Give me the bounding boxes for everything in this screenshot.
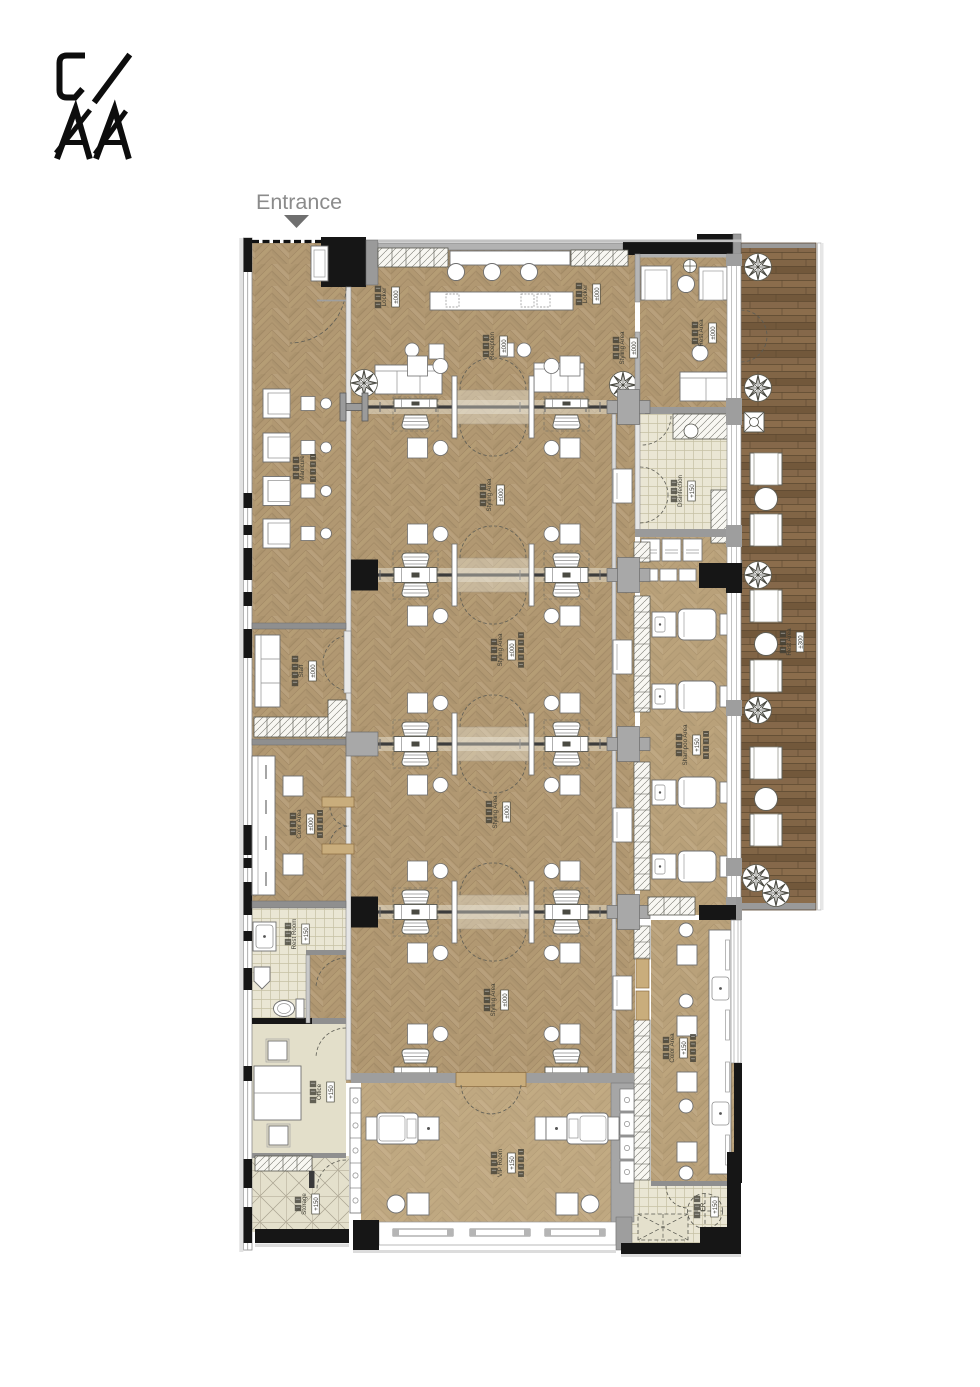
svg-text:+150: +150 (304, 927, 310, 941)
svg-text:Color Area: Color Area (669, 1033, 676, 1063)
svg-text:±000: ±000 (503, 993, 509, 1007)
svg-text:+150: +150 (695, 738, 701, 752)
svg-text:±000: ±000 (311, 664, 317, 678)
svg-text:Shampoo Area: Shampoo Area (682, 724, 689, 765)
svg-text:+150: +150 (713, 1200, 719, 1214)
svg-text:+150: +150 (682, 1041, 688, 1055)
svg-text:+150: +150 (510, 1156, 516, 1170)
svg-text:Rest Room: Rest Room (291, 919, 298, 950)
svg-text:±000: ±000 (595, 287, 601, 301)
svg-text:Manicure: Manicure (299, 455, 306, 481)
svg-text:Staff: Staff (298, 664, 305, 677)
svg-text:Styling Area: Styling Area (486, 478, 493, 512)
svg-text:Reception: Reception (489, 332, 496, 360)
svg-text:±000: ±000 (510, 643, 516, 657)
svg-text:Storage: Storage (301, 1193, 308, 1215)
svg-text:Locker: Locker (381, 288, 388, 307)
svg-text:Entrance: Entrance (256, 190, 342, 214)
svg-text:+150: +150 (690, 484, 696, 498)
svg-text:Styling Area: Styling Area (497, 633, 504, 667)
svg-text:VIP Room: VIP Room (497, 1149, 504, 1177)
svg-text:±000: ±000 (499, 488, 505, 502)
svg-text:Disinfection: Disinfection (677, 474, 684, 507)
svg-text:±000: ±000 (505, 805, 511, 819)
svg-text:±000: ±000 (502, 339, 508, 353)
svg-text:Rest Area: Rest Area (698, 319, 705, 347)
svg-text:Styling Area: Styling Area (492, 795, 499, 829)
svg-text:±000: ±000 (394, 290, 400, 304)
svg-text:±300: ±300 (798, 635, 804, 649)
svg-text:Styling Area: Styling Area (619, 331, 626, 365)
svg-text:+150: +150 (314, 1197, 320, 1211)
svg-text:ER: ER (700, 1202, 707, 1211)
svg-text:±000: ±000 (711, 326, 717, 340)
svg-text:Styling Area: Styling Area (490, 983, 497, 1017)
svg-text:+150: +150 (329, 1085, 335, 1099)
svg-text:Rest Area: Rest Area (786, 628, 793, 656)
svg-text:Office: Office (316, 1083, 323, 1100)
svg-text:Color Area: Color Area (296, 809, 303, 839)
svg-text:Locker: Locker (582, 285, 589, 304)
svg-text:±000: ±000 (632, 341, 638, 355)
svg-text:±000: ±000 (309, 817, 315, 831)
